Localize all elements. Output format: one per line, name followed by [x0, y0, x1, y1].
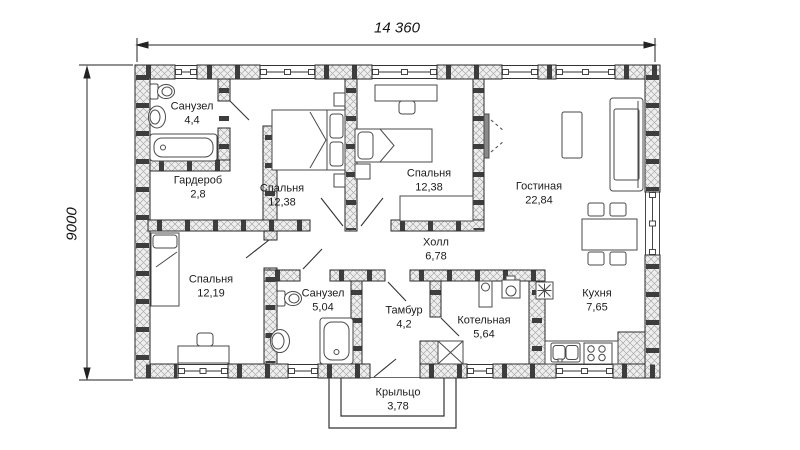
window	[556, 66, 615, 79]
window	[646, 192, 660, 255]
room-label-boiler-room: Котельная 5,64	[457, 314, 510, 342]
ventilation-icon	[536, 282, 553, 299]
kitchen-counter	[545, 341, 618, 364]
room-area: 3,78	[376, 400, 421, 414]
room-name: Холл	[423, 236, 449, 250]
door-bathroom-1	[230, 101, 249, 120]
room-area: 6,78	[423, 250, 449, 264]
desk-2	[375, 85, 437, 114]
window	[467, 365, 493, 378]
toilet-2	[277, 291, 302, 306]
sofa	[610, 98, 643, 191]
double-bed	[272, 93, 345, 187]
bathtub-2	[320, 318, 353, 364]
room-label-living-room: Гостиная 22,84	[516, 180, 562, 208]
room-name: Санузел	[171, 100, 214, 114]
room-name: Спальня	[260, 182, 304, 196]
door-vestibule	[388, 282, 406, 301]
door-entrance	[374, 359, 396, 377]
room-name: Гардероб	[174, 174, 222, 188]
room-name: Тамбур	[385, 304, 422, 318]
window	[372, 66, 437, 79]
room-area: 4,4	[171, 114, 214, 128]
room-area: 12,38	[260, 196, 304, 210]
room-area: 12,38	[407, 181, 451, 195]
dimension-width-label: 14 360	[374, 20, 420, 37]
room-label-hall: Холл 6,78	[423, 236, 449, 264]
door-boiler-room	[441, 318, 459, 336]
room-area: 2,8	[174, 188, 222, 202]
nightstand	[334, 174, 345, 187]
window	[175, 66, 197, 79]
window	[288, 365, 318, 378]
room-name: Крыльцо	[376, 386, 421, 400]
toilet-1	[150, 84, 175, 99]
tv	[484, 114, 504, 158]
stove	[584, 343, 612, 364]
door-bedroom-3	[246, 240, 269, 258]
dimension-height-label: 9000	[64, 207, 81, 240]
room-label-porch: Крыльцо 3,78	[376, 386, 421, 414]
door-bedroom-1	[321, 198, 343, 226]
room-label-kitchen: Кухня 7,65	[582, 287, 611, 315]
bathtub-1	[150, 134, 217, 161]
floor-plan-drawing	[0, 0, 800, 450]
room-area: 7,65	[582, 301, 611, 315]
floor-plan: 14 360 9000 Санузел 4,4 Гардероб 2,8 Спа…	[0, 0, 800, 450]
room-name: Котельная	[457, 314, 510, 328]
coffee-table	[562, 112, 582, 158]
door-bedroom-2	[361, 198, 383, 226]
room-name: Спальня	[189, 273, 233, 287]
room-name: Санузел	[302, 287, 345, 301]
nightstand	[334, 93, 345, 106]
room-label-bedroom-1: Спальня 12,38	[260, 182, 304, 210]
room-name: Спальня	[407, 167, 451, 181]
window	[502, 66, 538, 79]
window	[260, 66, 315, 79]
room-label-bedroom-3: Спальня 12,19	[189, 273, 233, 301]
water-heater	[479, 281, 492, 307]
chimney-icon	[438, 341, 463, 364]
dining-table	[582, 203, 637, 265]
room-label-bedroom-2: Спальня 12,38	[407, 167, 451, 195]
room-label-bathroom-1: Санузел 4,4	[171, 100, 214, 128]
room-label-vestibule: Тамбур 4,2	[385, 304, 422, 332]
nightstand	[355, 164, 370, 179]
door-bathroom-2	[303, 249, 322, 269]
room-label-wardrobe: Гардероб 2,8	[174, 174, 222, 202]
single-bed-3	[151, 233, 179, 306]
wardrobe-2	[400, 196, 473, 221]
room-area: 5,64	[457, 328, 510, 342]
room-label-bathroom-2: Санузел 5,04	[302, 287, 345, 315]
room-area: 5,04	[302, 301, 345, 315]
room-name: Кухня	[582, 287, 611, 301]
room-name: Гостиная	[516, 180, 562, 194]
window	[556, 365, 613, 378]
sink-1	[149, 106, 166, 128]
room-area: 12,19	[189, 287, 233, 301]
room-area: 4,2	[385, 318, 422, 332]
desk-3	[178, 333, 229, 363]
sink-2	[271, 330, 290, 353]
room-area: 22,84	[516, 194, 562, 208]
window	[178, 365, 228, 378]
